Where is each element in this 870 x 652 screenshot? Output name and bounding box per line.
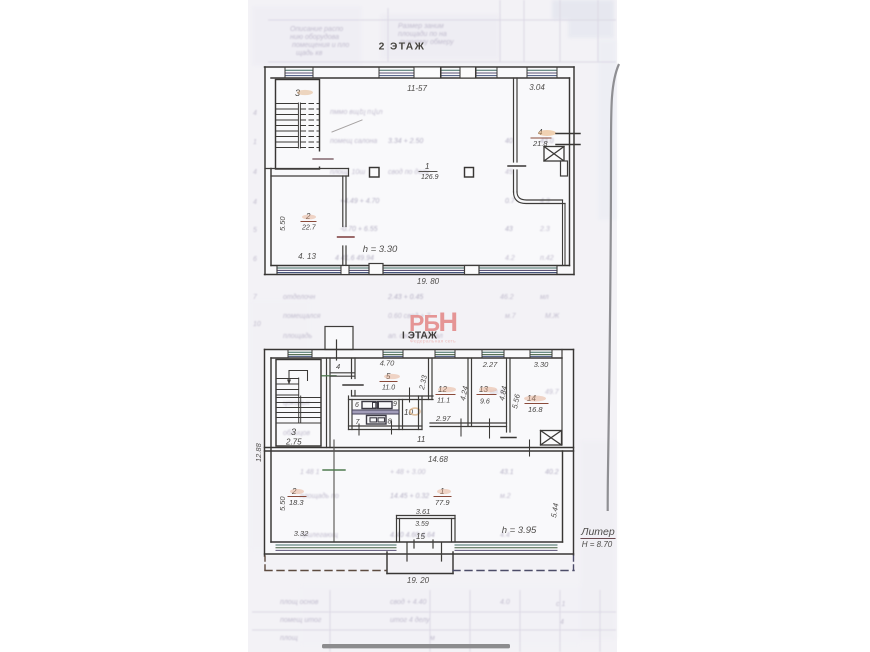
svg-text:4.70: 4.70: [380, 359, 395, 368]
svg-text:40: 40: [505, 138, 513, 145]
svg-text:4: 4: [336, 362, 340, 371]
svg-text:нию оборудова: нию оборудова: [290, 33, 339, 41]
svg-text:77.9: 77.9: [435, 498, 450, 507]
svg-text:Литер: Литер: [580, 526, 615, 538]
svg-text:свод + 4.40: свод + 4.40: [390, 598, 426, 606]
svg-text:4: 4: [253, 110, 257, 117]
svg-text:45: 45: [505, 169, 513, 176]
svg-text:4: 4: [560, 619, 564, 626]
svg-text:I ЭТАЖ: I ЭТАЖ: [402, 331, 438, 342]
svg-text:площадь: площадь: [283, 332, 312, 340]
svg-text:4: 4: [253, 169, 257, 176]
svg-text:помещ салона: помещ салона: [330, 138, 377, 145]
svg-text:площади по на: площади по на: [398, 30, 447, 38]
svg-text:площ. 10ш: площ. 10ш: [330, 169, 365, 176]
svg-text:2.75: 2.75: [285, 438, 302, 447]
svg-text:5: 5: [253, 227, 257, 234]
svg-text:11.1: 11.1: [437, 398, 450, 405]
svg-text:площ: площ: [280, 635, 298, 642]
svg-text:2.3: 2.3: [539, 226, 550, 233]
svg-text:щадь кв: щадь кв: [296, 49, 323, 57]
svg-text:11: 11: [417, 435, 425, 444]
svg-text:мл: мл: [540, 294, 549, 301]
svg-text:помещался: помещался: [283, 313, 321, 320]
svg-text:1 48 1: 1 48 1: [300, 469, 320, 476]
svg-text:11.0: 11.0: [382, 385, 395, 392]
svg-text:5.50: 5.50: [278, 496, 287, 511]
svg-text:19. 80: 19. 80: [417, 277, 440, 286]
svg-text:2.27: 2.27: [482, 360, 498, 369]
svg-text:1: 1: [425, 162, 429, 171]
svg-text:м.7: м.7: [505, 313, 517, 320]
svg-text:3.59: 3.59: [415, 521, 429, 528]
svg-text:помещ итог: помещ итог: [280, 617, 322, 624]
svg-text:4 41.6 49.94: 4 41.6 49.94: [335, 255, 374, 262]
svg-text:площ основ: площ основ: [280, 599, 319, 606]
svg-text:2 ЭТАЖ: 2 ЭТАЖ: [379, 42, 426, 53]
svg-text:14.68: 14.68: [428, 455, 449, 464]
svg-text:4. 13: 4. 13: [298, 252, 316, 261]
svg-text:43.1: 43.1: [500, 469, 514, 476]
svg-text:6: 6: [355, 402, 359, 409]
svg-text:126.9: 126.9: [421, 174, 439, 181]
svg-text:22.7: 22.7: [301, 225, 317, 232]
svg-text:40.2: 40.2: [545, 469, 559, 476]
svg-text:Описание распо: Описание распо: [290, 26, 343, 33]
svg-text:облицов: облицов: [283, 429, 310, 437]
svg-text:отделочн: отделочн: [283, 293, 315, 301]
svg-text:15: 15: [416, 532, 425, 541]
svg-text:пммо вщել пվտ: пммо вщել пվտ: [330, 108, 382, 116]
svg-text:43: 43: [505, 226, 513, 233]
svg-text:4.2: 4.2: [505, 255, 515, 262]
svg-text:3.32: 3.32: [294, 529, 309, 538]
svg-text:п.42: п.42: [540, 255, 554, 262]
svg-text:h = 3.95: h = 3.95: [502, 525, 537, 536]
svg-text:16.8: 16.8: [528, 405, 543, 414]
svg-text:5.50: 5.50: [278, 216, 287, 231]
svg-text:h = 3.30: h = 3.30: [363, 244, 398, 255]
svg-text:с 1: с 1: [556, 601, 565, 608]
svg-text:49.7: 49.7: [545, 389, 560, 396]
svg-text:9: 9: [393, 401, 397, 408]
svg-text:18.3: 18.3: [289, 498, 304, 507]
svg-text:3.61: 3.61: [416, 507, 431, 516]
svg-text:Размер заним: Размер заним: [398, 23, 444, 30]
svg-text:19. 20: 19. 20: [407, 576, 430, 585]
svg-text:М.Ж: М.Ж: [545, 313, 560, 320]
svg-text:3.04: 3.04: [529, 83, 545, 92]
svg-text:Н: Н: [439, 307, 459, 337]
svg-text:3.34 + 2.50: 3.34 + 2.50: [388, 138, 423, 145]
svg-text:6: 6: [253, 256, 257, 263]
svg-text:2.43 + 0.45: 2.43 + 0.45: [387, 294, 423, 301]
svg-text:+ 48 + 3.00: + 48 + 3.00: [390, 469, 426, 476]
svg-text:0.7: 0.7: [505, 198, 516, 205]
svg-text:9.6: 9.6: [480, 399, 490, 406]
svg-text:10: 10: [253, 321, 261, 328]
svg-text:11-57: 11-57: [407, 84, 427, 93]
svg-text:итог 4 делу: итог 4 делу: [390, 616, 430, 624]
svg-text:м.2: м.2: [500, 493, 511, 500]
svg-text:Н = 8.70: Н = 8.70: [582, 540, 613, 549]
svg-text:2.97: 2.97: [435, 414, 451, 423]
svg-text:помещения и пло: помещения и пло: [292, 42, 349, 49]
svg-text:1: 1: [253, 139, 257, 146]
svg-text:м: м: [430, 635, 435, 642]
svg-text:3: 3: [291, 427, 296, 437]
svg-text:3.30: 3.30: [534, 360, 549, 369]
svg-text:цокольн: цокольн: [283, 400, 310, 407]
svg-text:14.45 + 0.32: 14.45 + 0.32: [390, 493, 429, 500]
svg-text:4: 4: [253, 199, 257, 206]
svg-text:46.2: 46.2: [500, 294, 514, 301]
svg-text:4.0: 4.0: [500, 599, 510, 606]
svg-text:12.88: 12.88: [254, 442, 263, 462]
